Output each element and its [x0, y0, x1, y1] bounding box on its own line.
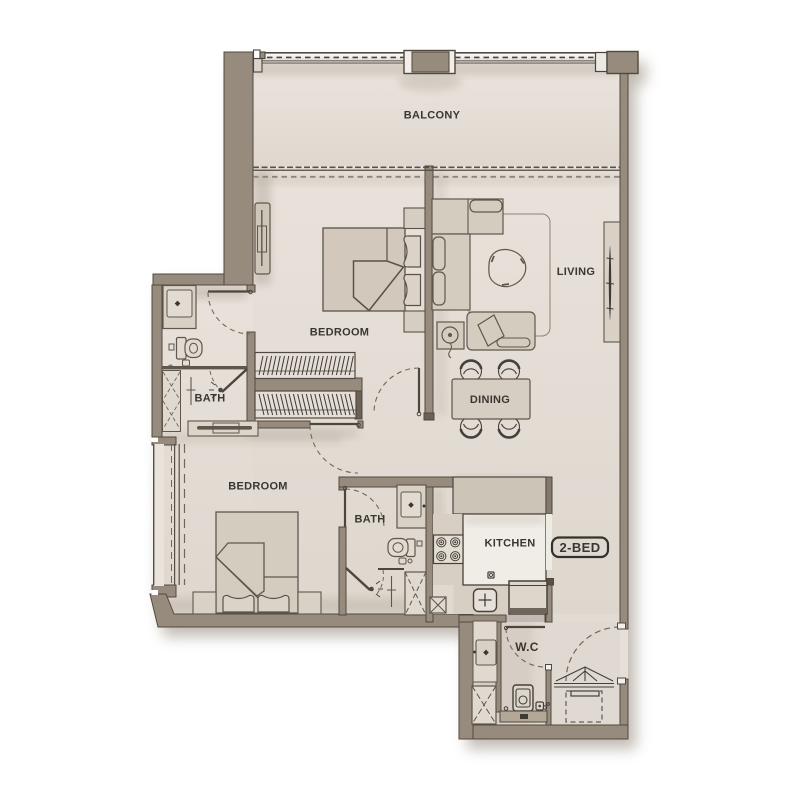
svg-text:DINING: DINING	[470, 394, 510, 406]
svg-text:BATH: BATH	[355, 514, 386, 526]
svg-text:BEDROOM: BEDROOM	[310, 327, 370, 339]
svg-text:2-BED: 2-BED	[559, 540, 600, 555]
svg-text:BALCONY: BALCONY	[404, 110, 461, 122]
svg-text:W.C: W.C	[515, 640, 539, 654]
svg-text:BEDROOM: BEDROOM	[228, 481, 288, 493]
svg-text:BATH: BATH	[195, 393, 226, 405]
svg-text:LIVING: LIVING	[557, 266, 595, 278]
svg-text:KITCHEN: KITCHEN	[485, 538, 536, 550]
